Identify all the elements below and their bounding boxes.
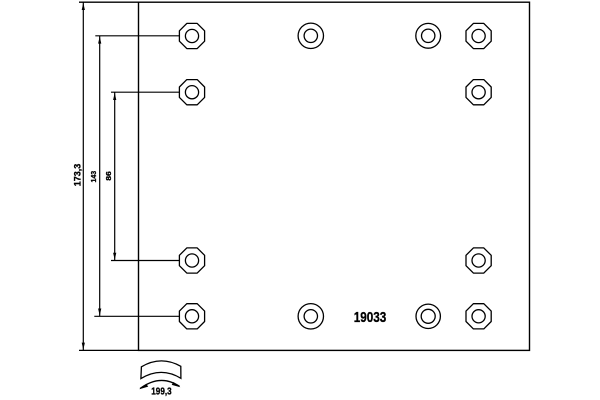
svg-text:173,3: 173,3 bbox=[72, 164, 82, 187]
svg-text:19033: 19033 bbox=[354, 309, 387, 326]
svg-text:199,3: 199,3 bbox=[151, 387, 172, 398]
svg-text:143: 143 bbox=[89, 171, 98, 183]
svg-text:86: 86 bbox=[104, 171, 113, 181]
